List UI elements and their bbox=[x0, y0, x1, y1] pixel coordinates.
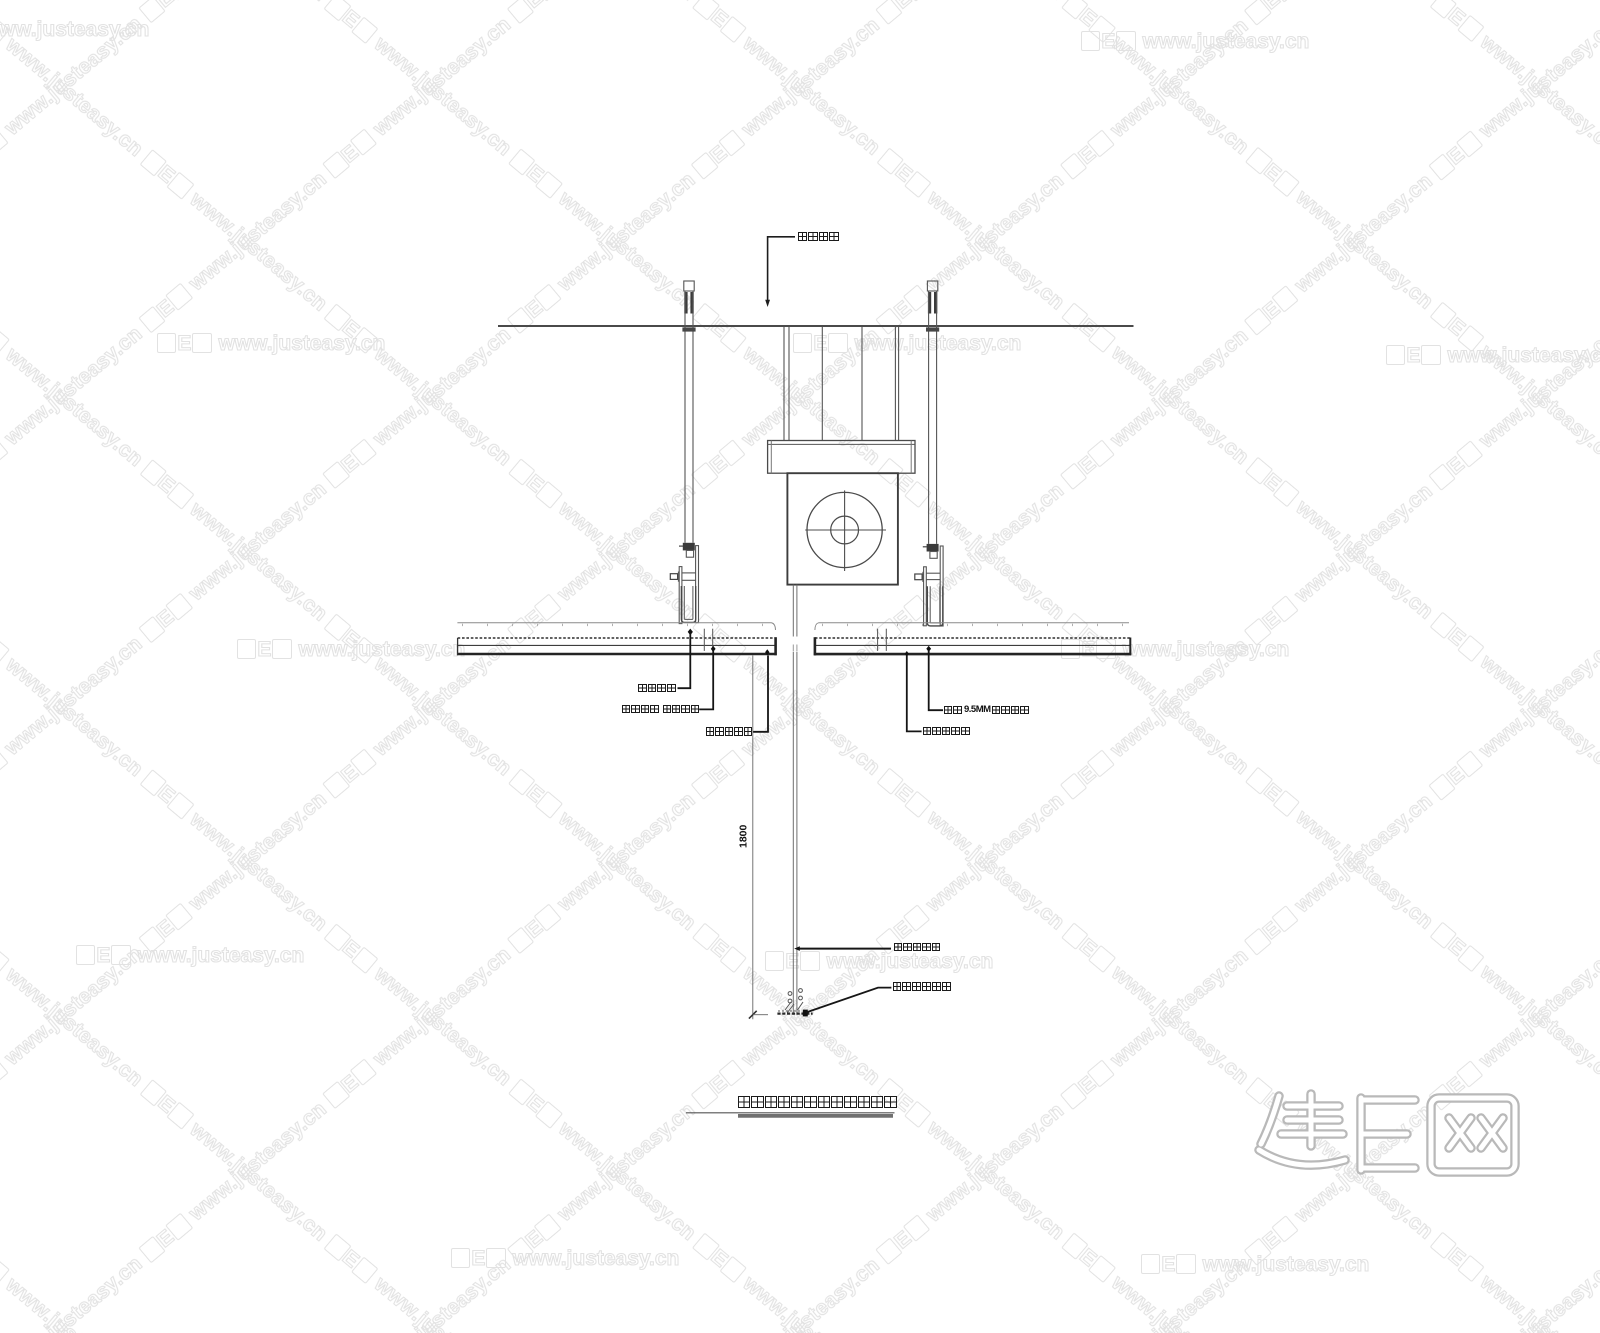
svg-text:1800: 1800 bbox=[738, 824, 750, 848]
